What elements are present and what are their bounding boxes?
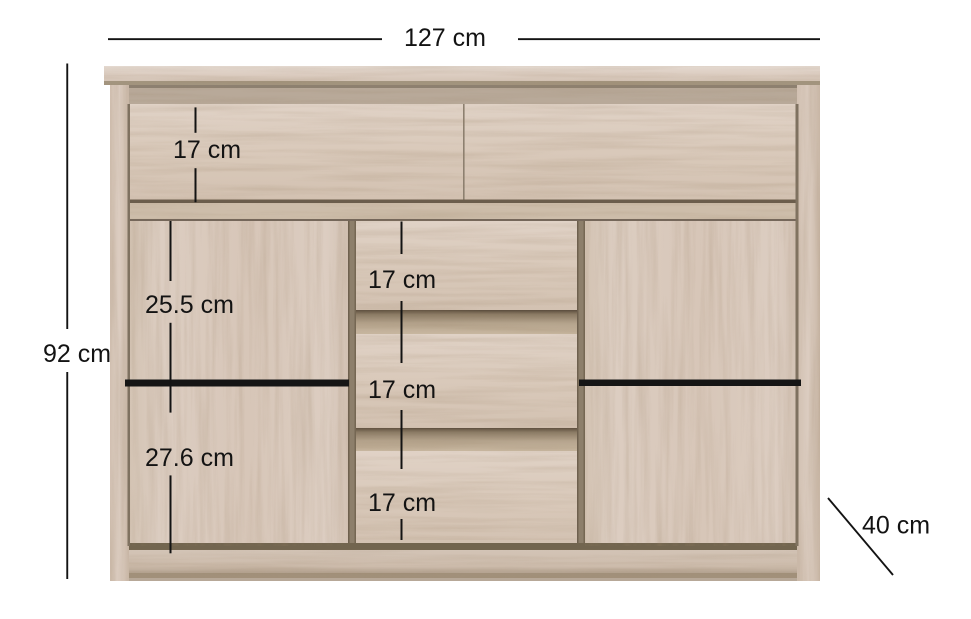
svg-text:40 cm: 40 cm: [862, 512, 930, 540]
svg-text:17 cm: 17 cm: [173, 136, 241, 164]
svg-text:127 cm: 127 cm: [404, 24, 486, 52]
svg-text:25.5 cm: 25.5 cm: [145, 291, 234, 319]
svg-text:92 cm: 92 cm: [43, 340, 111, 368]
svg-text:17 cm: 17 cm: [368, 489, 436, 517]
svg-text:17 cm: 17 cm: [368, 376, 436, 404]
svg-text:27.6 cm: 27.6 cm: [145, 444, 234, 472]
svg-text:17 cm: 17 cm: [368, 266, 436, 294]
